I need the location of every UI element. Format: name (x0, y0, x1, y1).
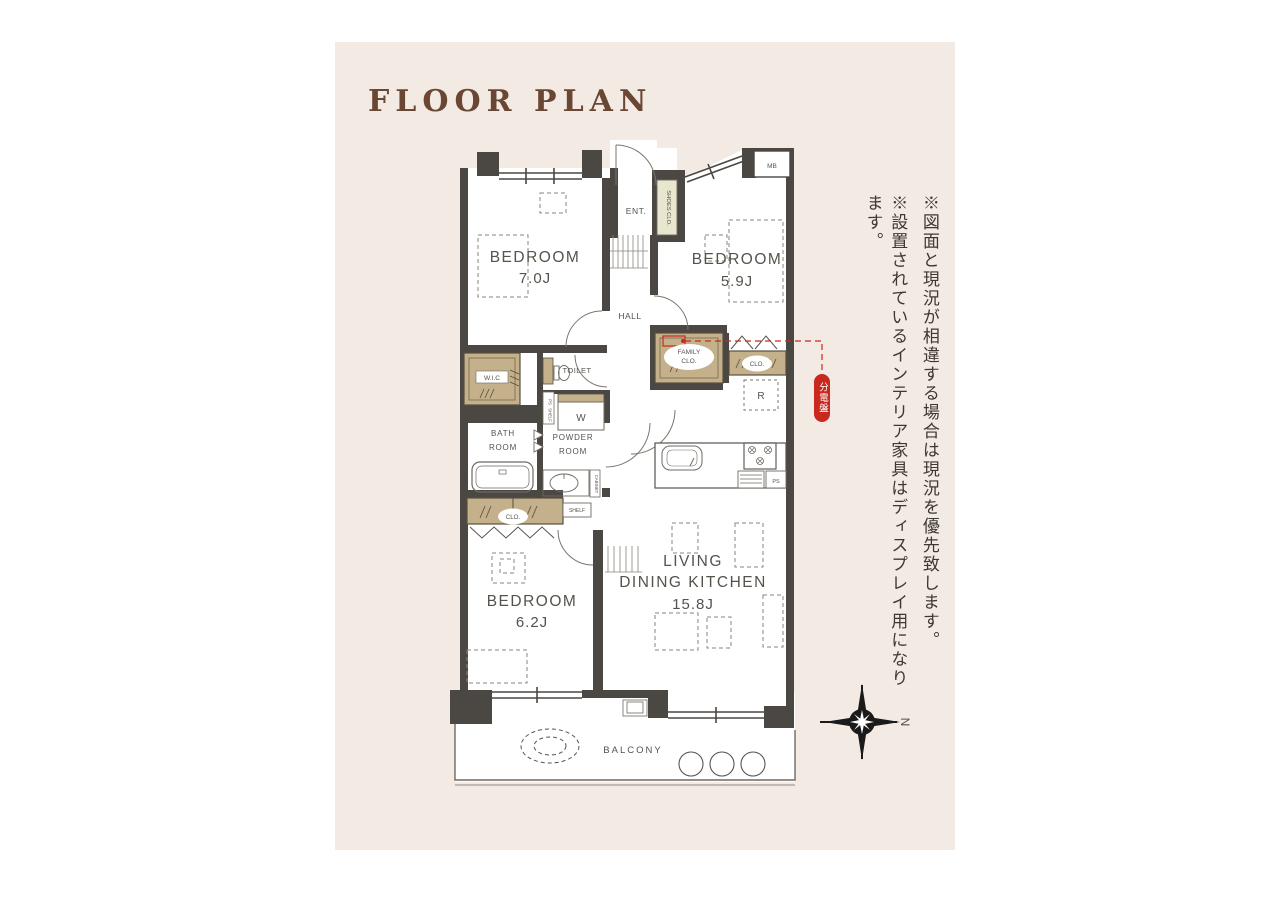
page-title: FLOOR PLAN (368, 84, 652, 119)
washer-label: W (576, 413, 586, 424)
shelf-box-label: SHELF (569, 508, 585, 514)
powder-room-label-line1: POWDER (553, 433, 594, 442)
bedroom3-label: BEDROOM (487, 593, 578, 610)
bathroom-label-line2: ROOM (489, 443, 517, 452)
slop-sink (623, 700, 647, 716)
page: { "page": { "title": "FLOOR PLAN" }, "no… (0, 0, 1280, 905)
hall-label: HALL (618, 311, 641, 321)
cabinet-label: CABINET (594, 475, 599, 494)
refrigerator-label: R (757, 391, 764, 402)
shelf-strip-label: SHELF (548, 408, 553, 422)
pipe-space-kitchen-label: PS (772, 479, 780, 485)
wic-label: W.I.C (484, 375, 500, 382)
ldk-label-line2: DINING KITCHEN (619, 574, 767, 591)
disclaimer-note-2: ※設置されているインテリア家具はディスプレイ用になります。 (860, 194, 909, 704)
floor-plan-panel: FLOOR PLAN (335, 42, 955, 850)
kitchen-counter (655, 443, 786, 488)
meter-box-label: MB (767, 163, 777, 170)
bedroom2-label: BEDROOM (692, 251, 783, 268)
toilet-label: TOILET (562, 366, 591, 375)
shoes-closet-label: SHOES CLO. (665, 190, 671, 226)
bathroom-label-line1: BATH (491, 429, 515, 438)
pipe-space-strip-label: PS (548, 399, 553, 405)
disclaimer-note-1: ※図面と現況が相違する場合は現況を優先致します。 (916, 194, 941, 704)
bedroom3-size: 6.2J (516, 614, 548, 631)
closet-right-label: CLO. (750, 361, 765, 368)
washer-shelf (558, 394, 604, 402)
family-closet-label-line1: FAMILY (678, 349, 701, 356)
closet-bottom-label: CLO. (506, 514, 521, 521)
bedroom1-label: BEDROOM (490, 249, 581, 266)
compass-north-label: N (898, 718, 912, 727)
bedroom1-size: 7.0J (519, 270, 551, 287)
ldk-label-line1: LIVING (663, 553, 723, 570)
powder-room-label-line2: ROOM (559, 447, 587, 456)
balcony-label: BALCONY (603, 745, 662, 756)
disclaimer-notes: ※図面と現況が相違する場合は現況を優先致します。 ※設置されているインテリア家具… (853, 194, 941, 704)
entrance-label: ENT. (626, 206, 646, 216)
distribution-board-badge: 分電盤 (814, 374, 830, 422)
ldk-size: 15.8J (672, 596, 714, 613)
bedroom2-size: 5.9J (721, 273, 753, 290)
family-closet-label-line2: CLO. (681, 358, 696, 365)
